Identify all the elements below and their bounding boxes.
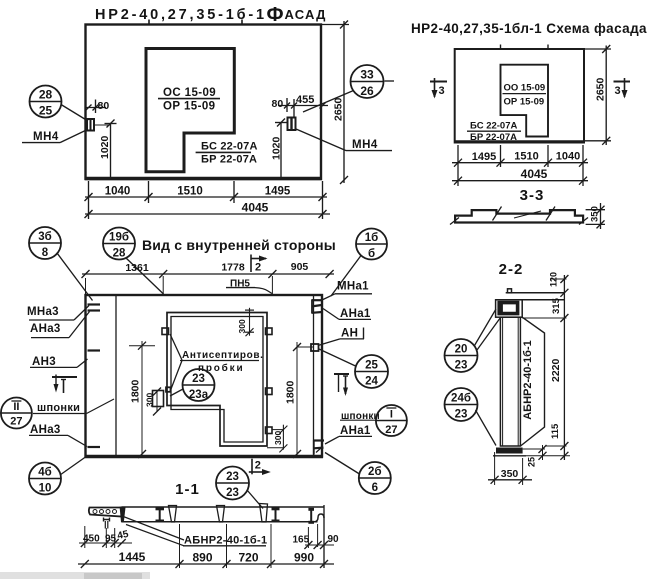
svg-text:Антисептиров.: Антисептиров. [182,350,263,361]
svg-text:БС 22-07А: БС 22-07А [201,141,258,153]
svg-text:2: 2 [255,262,261,274]
svg-text:455: 455 [296,94,314,106]
svg-text:23: 23 [192,373,205,385]
svg-text:450: 450 [83,534,100,545]
svg-text:28: 28 [39,88,53,102]
svg-text:АБНР2-40-1б-1: АБНР2-40-1б-1 [184,535,267,547]
svg-text:120: 120 [549,272,559,287]
svg-text:АНа3: АНа3 [30,424,61,436]
svg-text:МНа1: МНа1 [337,281,369,293]
svg-text:165: 165 [293,535,310,546]
svg-text:80: 80 [272,98,284,110]
svg-text:25: 25 [365,360,378,372]
svg-text:6: 6 [372,482,378,494]
svg-text:АНа1: АНа1 [340,425,371,437]
svg-text:ОР 15-09: ОР 15-09 [163,101,215,113]
svg-text:3: 3 [615,85,621,97]
svg-text:БС 22-07А: БС 22-07А [470,121,518,132]
svg-text:АСАД: АСАД [285,7,327,22]
svg-text:ОО 15-09: ОО 15-09 [504,83,546,94]
svg-text:ОС 15-09: ОС 15-09 [163,87,216,99]
svg-text:33: 33 [360,68,374,82]
svg-text:25: 25 [527,457,537,467]
svg-text:ОР 15-09: ОР 15-09 [504,97,545,108]
svg-text:1020: 1020 [271,136,283,160]
svg-text:8: 8 [42,247,49,259]
svg-text:АНа3: АНа3 [30,323,61,335]
svg-text:2650: 2650 [333,97,345,121]
svg-text:315: 315 [551,297,562,314]
svg-text:1040: 1040 [556,151,580,163]
svg-text:1800: 1800 [130,379,142,403]
svg-text:Ф: Ф [267,4,284,26]
svg-text:3-3: 3-3 [520,187,545,204]
svg-text:1800: 1800 [285,380,297,404]
svg-text:300: 300 [237,319,247,333]
svg-text:НР2-40,27,35-1бл-1 Схема фасад: НР2-40,27,35-1бл-1 Схема фасада [411,21,647,36]
svg-text:990: 990 [294,551,314,565]
svg-text:115: 115 [550,423,561,439]
svg-text:890: 890 [192,551,212,565]
svg-text:1510: 1510 [177,186,203,198]
svg-text:НР2-40,27,35-1б-1: НР2-40,27,35-1б-1 [95,7,267,23]
svg-text:АНа1: АНа1 [340,308,371,320]
svg-text:24б: 24б [451,393,471,405]
svg-text:19б: 19б [109,232,129,244]
svg-text:23: 23 [226,487,239,499]
svg-text:25: 25 [39,104,53,118]
svg-text:720: 720 [238,551,258,565]
svg-text:4045: 4045 [242,201,269,215]
svg-text:Вид с внутренней стороны: Вид с внутренней стороны [142,237,336,253]
svg-text:пробки: пробки [198,362,244,374]
svg-text:1495: 1495 [265,186,291,198]
svg-text:4б: 4б [38,467,52,479]
svg-text:2-2: 2-2 [499,261,524,278]
svg-text:2650: 2650 [595,77,607,101]
svg-text:МНа3: МНа3 [27,306,59,318]
svg-text:4045: 4045 [521,167,548,181]
svg-text:АН: АН [341,328,358,340]
svg-text:1б: 1б [365,232,379,244]
svg-text:МН4: МН4 [33,131,59,143]
svg-text:1495: 1495 [472,151,496,163]
svg-text:23: 23 [226,471,239,483]
svg-text:45: 45 [116,529,130,542]
svg-text:27: 27 [10,416,22,428]
svg-text:350: 350 [501,468,519,480]
svg-text:МН4: МН4 [352,139,378,151]
svg-text:1445: 1445 [119,550,146,564]
svg-text:1778: 1778 [221,262,245,274]
svg-text:27: 27 [385,424,397,436]
svg-text:300: 300 [145,393,155,407]
svg-text:1-1: 1-1 [175,481,200,498]
svg-text:шпонки: шпонки [37,402,80,414]
svg-text:23: 23 [455,409,468,421]
svg-text:300: 300 [273,431,283,445]
svg-text:10: 10 [39,483,52,495]
svg-text:3: 3 [439,85,445,97]
svg-text:80: 80 [98,100,110,112]
svg-text:23а: 23а [189,389,209,401]
svg-text:2: 2 [255,459,261,471]
svg-text:2б: 2б [368,466,382,478]
svg-text:1361: 1361 [125,262,149,274]
svg-text:БР 22-07А: БР 22-07А [201,154,257,166]
svg-text:АН3: АН3 [32,356,56,368]
svg-text:28: 28 [113,248,126,260]
svg-text:1040: 1040 [105,186,131,198]
svg-text:350: 350 [590,206,601,222]
svg-text:26: 26 [360,84,374,98]
svg-text:БР 22-07А: БР 22-07А [470,132,517,143]
svg-text:95: 95 [105,534,117,545]
svg-text:20: 20 [455,344,468,356]
svg-text:2220: 2220 [550,358,562,382]
svg-text:АБНР2-40-1б-1: АБНР2-40-1б-1 [522,340,534,420]
svg-text:II: II [13,401,19,413]
svg-text:б: б [368,248,375,260]
svg-text:1510: 1510 [514,151,538,163]
svg-text:I: I [390,409,393,421]
svg-text:90: 90 [328,534,340,545]
svg-text:1020: 1020 [99,135,111,159]
svg-text:23: 23 [455,360,468,372]
svg-text:3б: 3б [38,231,52,243]
svg-text:905: 905 [291,261,309,273]
svg-text:24: 24 [365,376,378,388]
